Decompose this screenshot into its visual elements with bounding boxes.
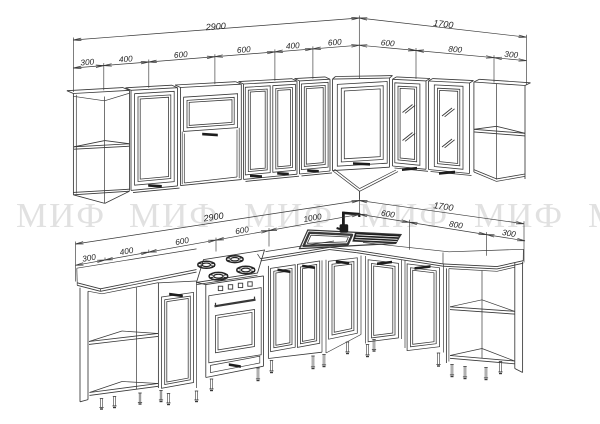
- svg-text:2900: 2900: [204, 21, 226, 33]
- svg-text:600: 600: [174, 50, 189, 60]
- svg-text:600: 600: [328, 38, 343, 48]
- svg-text:600: 600: [381, 38, 396, 48]
- svg-text:МИФ: МИФ: [588, 196, 600, 235]
- svg-text:МИФ: МИФ: [16, 196, 106, 235]
- svg-text:400: 400: [119, 54, 134, 64]
- svg-text:600: 600: [237, 45, 252, 55]
- svg-text:МИФ: МИФ: [474, 196, 564, 235]
- svg-text:400: 400: [286, 41, 301, 51]
- svg-text:800: 800: [448, 44, 463, 54]
- svg-text:300: 300: [504, 50, 519, 60]
- svg-text:300: 300: [80, 57, 95, 67]
